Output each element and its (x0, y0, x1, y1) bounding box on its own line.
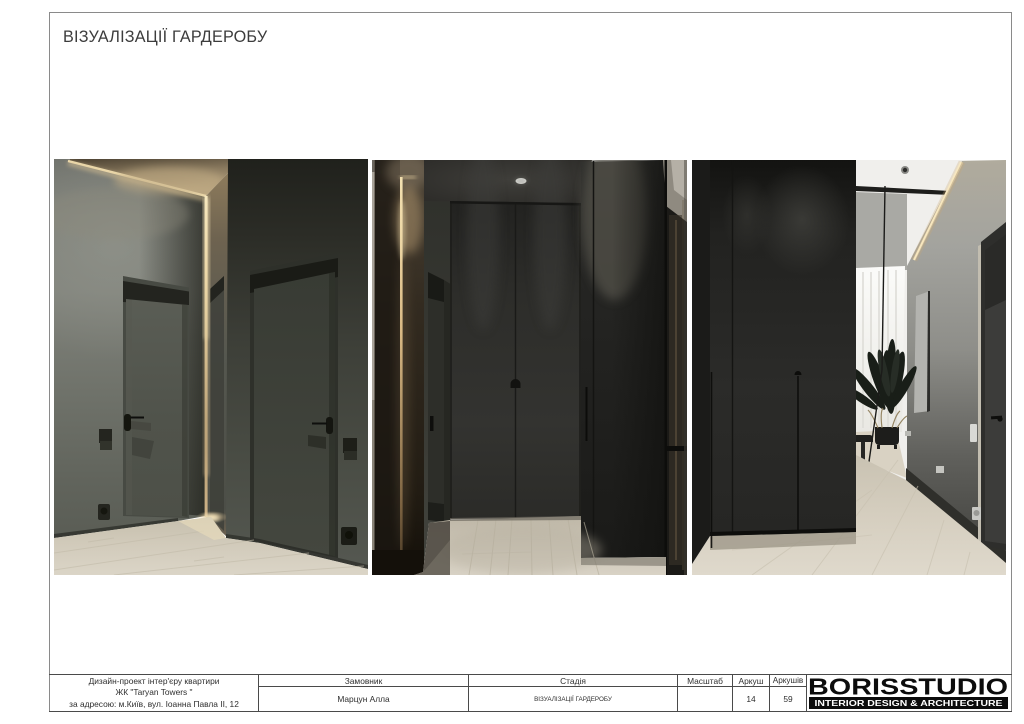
svg-text:BORISSTUDIO: BORISSTUDIO (808, 674, 1008, 700)
svg-text:INTERIOR DESIGN & ARCHITECTURE: INTERIOR DESIGN & ARCHITECTURE (815, 699, 1004, 708)
